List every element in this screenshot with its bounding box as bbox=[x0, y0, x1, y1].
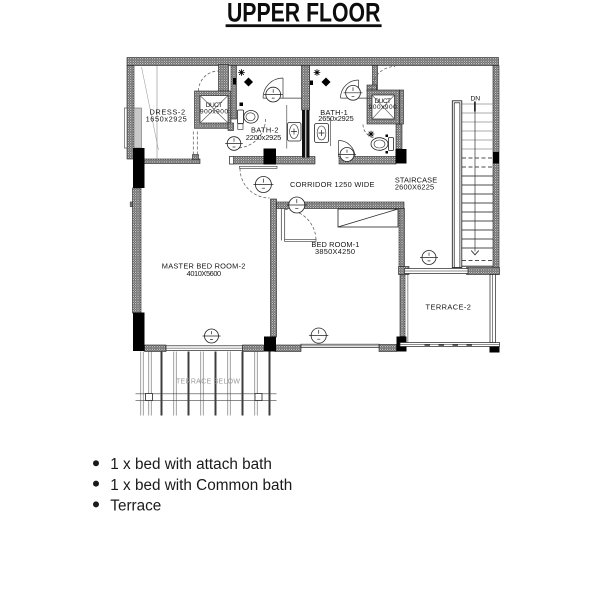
svg-text:2200x2925: 2200x2925 bbox=[246, 133, 282, 142]
svg-text:CORRIDOR 1250 WIDE: CORRIDOR 1250 WIDE bbox=[290, 180, 375, 189]
svg-text:2600X6225: 2600X6225 bbox=[395, 182, 434, 191]
svg-text:DN: DN bbox=[470, 96, 480, 103]
svg-text:1 x bed with attach bath: 1 x bed with attach bath bbox=[110, 456, 272, 473]
svg-text:900x900: 900x900 bbox=[369, 104, 397, 111]
svg-text:TERRACE BELOW: TERRACE BELOW bbox=[176, 378, 240, 385]
svg-text:4010X5600: 4010X5600 bbox=[187, 269, 222, 278]
svg-text:2650x2925: 2650x2925 bbox=[318, 114, 354, 123]
svg-text:1650x2925: 1650x2925 bbox=[146, 114, 187, 123]
svg-text:UPPER FLOOR: UPPER FLOOR bbox=[227, 0, 381, 28]
svg-text:Terrace: Terrace bbox=[110, 498, 161, 515]
svg-text:TERRACE-2: TERRACE-2 bbox=[426, 302, 471, 311]
svg-text:900x900: 900x900 bbox=[200, 109, 228, 116]
svg-text:3850X4250: 3850X4250 bbox=[315, 247, 355, 256]
svg-text:1 x bed with Common bath: 1 x bed with Common bath bbox=[110, 477, 292, 494]
